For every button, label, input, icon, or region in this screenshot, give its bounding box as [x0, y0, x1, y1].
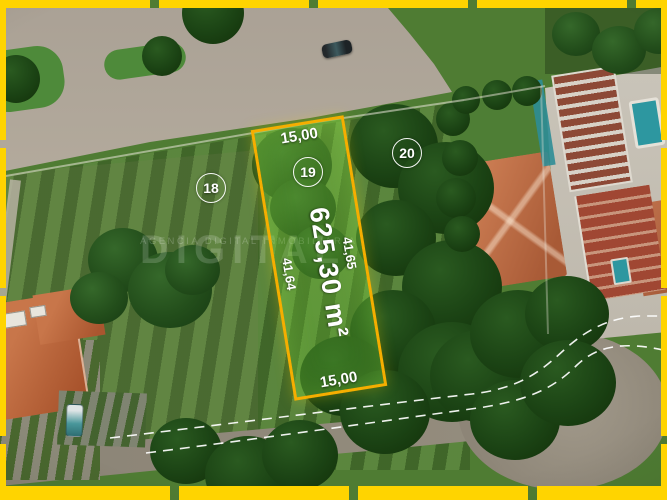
lot-19-badge: 19 — [293, 157, 323, 187]
lot-area-label: 625,30 m² — [303, 205, 355, 340]
frame-border-bottom — [0, 486, 667, 500]
left-side-measurement: 41,64 — [279, 256, 299, 291]
frame-border-right — [661, 0, 667, 500]
frame-border-left — [0, 0, 6, 500]
back-measurement: 15,00 — [319, 369, 359, 392]
lot-18-badge: 18 — [196, 173, 226, 203]
lot-20-badge: 20 — [392, 138, 422, 168]
lot-20-number: 20 — [399, 145, 415, 161]
front-measurement: 15,00 — [279, 125, 319, 148]
aerial-photo: DIGITAL AGENCIA DIGITAL INMOBILIARIA 15,… — [0, 0, 667, 500]
frame-border-top — [0, 0, 667, 8]
lot-18-number: 18 — [203, 180, 219, 196]
lot-19-number: 19 — [300, 164, 316, 180]
